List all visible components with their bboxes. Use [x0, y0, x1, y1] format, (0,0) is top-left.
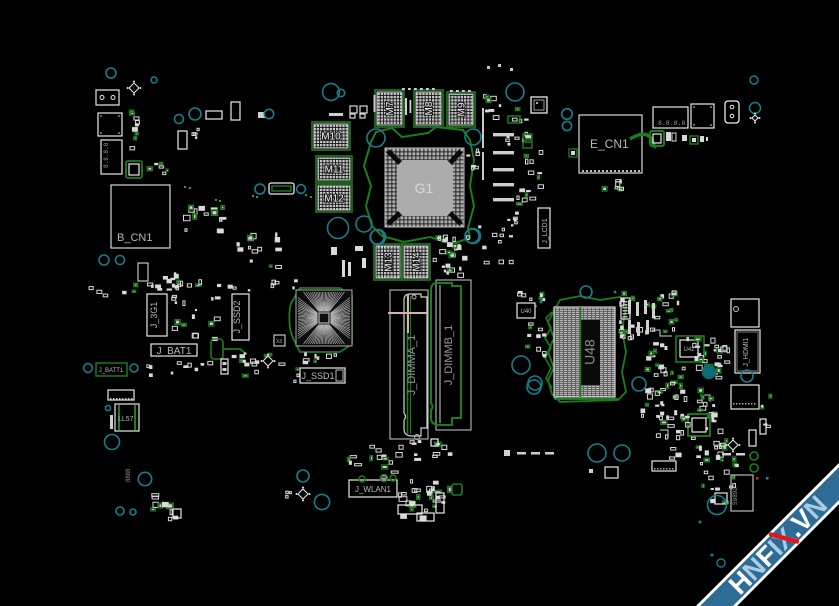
- svg-text:M10: M10: [321, 132, 341, 143]
- svg-text:J_SSD2: J_SSD2: [232, 300, 242, 333]
- svg-text:X3: X3: [276, 339, 282, 345]
- svg-text:G1: G1: [415, 180, 434, 196]
- svg-text:M8: M8: [424, 101, 435, 115]
- svg-text:J_DIMMA_1: J_DIMMA_1: [406, 335, 418, 396]
- svg-text:M9: M9: [457, 102, 468, 116]
- svg-text:E_CN1: E_CN1: [590, 137, 629, 151]
- svg-text:J_BATT1: J_BATT1: [99, 368, 124, 374]
- svg-text:8.8.8.8: 8.8.8.8: [658, 120, 685, 127]
- svg-text:J_SSD1: J_SSD1: [301, 371, 334, 381]
- svg-text:U42: U42: [683, 347, 695, 353]
- svg-text:J_BAT1: J_BAT1: [157, 346, 192, 357]
- svg-text:8888: 8888: [126, 468, 132, 482]
- svg-text:J_HDMI1: J_HDMI1: [743, 337, 750, 366]
- svg-text:J_WLAN1: J_WLAN1: [355, 485, 392, 494]
- svg-text:U48: U48: [582, 339, 598, 365]
- svg-text:J_LCD1: J_LCD1: [542, 218, 549, 243]
- svg-text:U40: U40: [520, 309, 532, 315]
- svg-text:LL57: LL57: [118, 416, 134, 423]
- svg-text:M13: M13: [384, 252, 395, 272]
- svg-text:S9892: S9892: [732, 487, 739, 505]
- svg-text:J_DIMMB_1: J_DIMMB_1: [443, 325, 455, 386]
- svg-text:8.8.8.8: 8.8.8.8: [103, 142, 110, 168]
- svg-text:M14: M14: [412, 252, 423, 272]
- svg-text:M11: M11: [325, 165, 344, 176]
- svg-text:B_CN1: B_CN1: [117, 232, 152, 244]
- svg-text:J_3G1: J_3G1: [149, 302, 159, 329]
- svg-text:M12: M12: [324, 194, 344, 205]
- svg-text:M7: M7: [385, 101, 396, 115]
